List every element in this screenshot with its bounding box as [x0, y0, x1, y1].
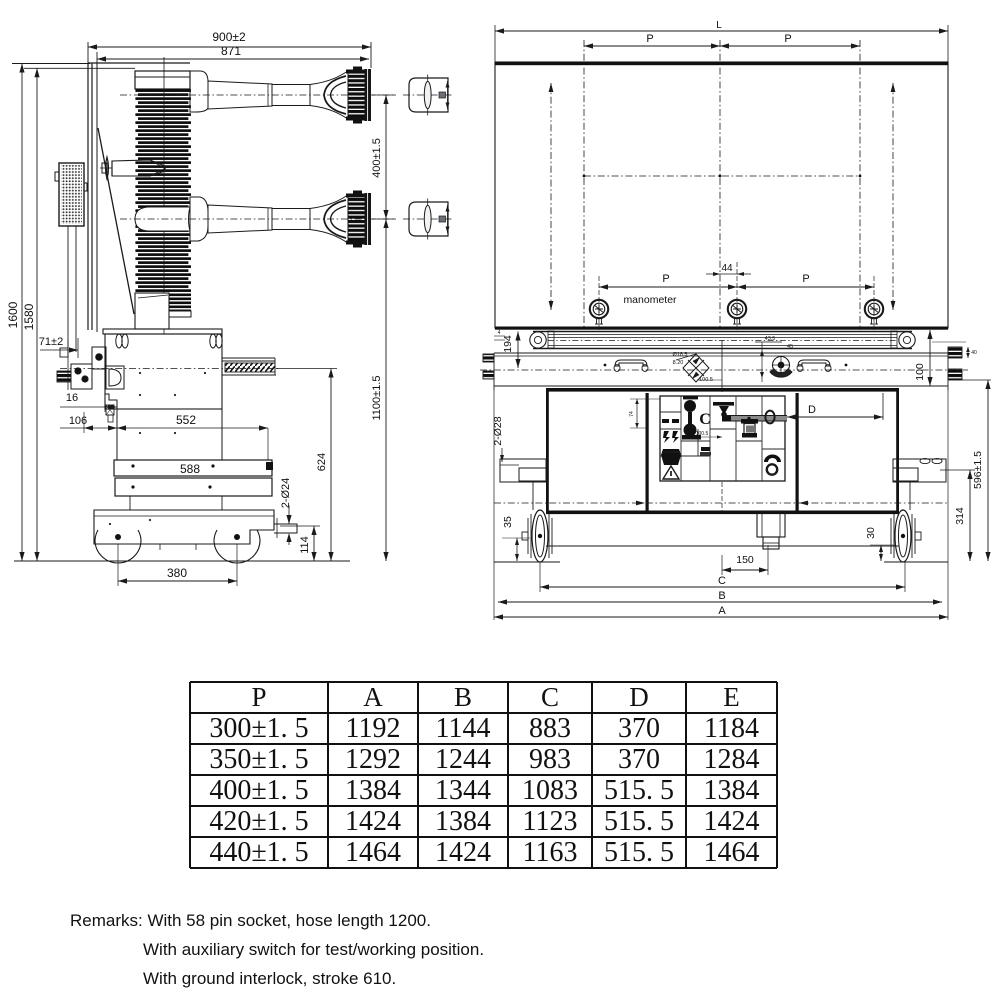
svg-text:370: 370	[618, 744, 660, 775]
svg-text:Remarks: With 58 pin socket, h: Remarks: With 58 pin socket, hose length…	[70, 911, 431, 930]
svg-text:Ø18.5: Ø18.5	[673, 352, 688, 358]
svg-text:C: C	[541, 682, 559, 712]
svg-text:4: 4	[498, 330, 501, 336]
svg-text:1144: 1144	[436, 713, 491, 744]
svg-text:8.20: 8.20	[673, 360, 684, 366]
svg-text:150: 150	[736, 554, 754, 566]
svg-text:515. 5: 515. 5	[604, 775, 674, 806]
svg-text:A: A	[718, 605, 726, 617]
svg-text:1244: 1244	[435, 744, 491, 775]
svg-text:1292: 1292	[345, 744, 401, 775]
svg-text:C: C	[699, 411, 711, 428]
svg-text:1424: 1424	[345, 806, 401, 837]
svg-text:552: 552	[176, 413, 196, 427]
svg-text:With auxiliary switch for test: With auxiliary switch for test/working p…	[143, 940, 484, 959]
svg-text:300±1. 5: 300±1. 5	[209, 713, 308, 744]
svg-text:1424: 1424	[435, 837, 491, 868]
svg-text:manometer: manometer	[623, 294, 677, 306]
svg-text:74: 74	[629, 411, 635, 417]
svg-text:1384: 1384	[435, 806, 491, 837]
svg-text:1464: 1464	[704, 837, 760, 868]
svg-text:515. 5: 515. 5	[604, 806, 674, 837]
svg-text:588: 588	[180, 462, 200, 476]
svg-text:100: 100	[914, 363, 926, 381]
svg-text:B: B	[718, 590, 725, 602]
svg-text:100.5: 100.5	[696, 431, 709, 437]
svg-text:440±1. 5: 440±1. 5	[209, 837, 308, 868]
svg-text:C: C	[718, 575, 726, 587]
svg-text:45: 45	[787, 344, 793, 350]
svg-text:D: D	[629, 682, 649, 712]
svg-text:1192: 1192	[346, 713, 401, 744]
svg-text:400±1.5: 400±1.5	[371, 138, 383, 178]
svg-text:900±2: 900±2	[212, 30, 246, 44]
svg-text:1600: 1600	[6, 301, 20, 328]
svg-text:515. 5: 515. 5	[604, 837, 674, 868]
svg-text:624: 624	[316, 453, 328, 471]
svg-text:1424: 1424	[704, 806, 760, 837]
svg-text:1384: 1384	[345, 775, 401, 806]
svg-text:1100±1.5: 1100±1.5	[371, 376, 383, 421]
svg-text:71±2: 71±2	[39, 336, 63, 348]
svg-text:With ground interlock, stroke: With ground interlock, stroke 610.	[143, 969, 396, 988]
svg-text:370: 370	[618, 713, 660, 744]
svg-text:1123: 1123	[523, 806, 578, 837]
svg-text:35: 35	[502, 516, 514, 528]
svg-text:194: 194	[502, 335, 514, 353]
svg-text:30: 30	[865, 527, 877, 539]
svg-text:1464: 1464	[345, 837, 401, 868]
svg-text:40: 40	[971, 350, 977, 356]
svg-text:420±1. 5: 420±1. 5	[209, 806, 308, 837]
svg-text:P: P	[251, 682, 266, 712]
svg-text:380: 380	[167, 566, 187, 580]
svg-text:106: 106	[69, 415, 87, 427]
svg-text:350±1. 5: 350±1. 5	[209, 744, 308, 775]
svg-text:P: P	[802, 273, 809, 285]
svg-text:1384: 1384	[704, 775, 760, 806]
svg-text:L: L	[716, 20, 722, 31]
svg-text:P: P	[646, 33, 653, 45]
svg-text:1344: 1344	[435, 775, 491, 806]
svg-text:E: E	[723, 682, 740, 712]
svg-text:1284: 1284	[704, 744, 760, 775]
svg-text:43.5: 43.5	[765, 336, 776, 342]
svg-text:44: 44	[721, 263, 733, 274]
svg-text:D: D	[808, 404, 816, 416]
svg-text:P: P	[662, 273, 669, 285]
svg-text:B: B	[454, 682, 472, 712]
svg-text:16: 16	[66, 392, 78, 404]
svg-text:983: 983	[529, 744, 571, 775]
svg-text:883: 883	[529, 713, 571, 744]
svg-text:A: A	[363, 682, 383, 712]
svg-text:1580: 1580	[22, 303, 36, 330]
svg-text:1184: 1184	[704, 713, 759, 744]
svg-text:400±1. 5: 400±1. 5	[209, 775, 308, 806]
svg-text:2-Ø28: 2-Ø28	[492, 416, 504, 445]
svg-text:1163: 1163	[523, 837, 578, 868]
svg-text:871: 871	[221, 44, 241, 58]
svg-text:P: P	[784, 33, 791, 45]
svg-text:1083: 1083	[522, 775, 578, 806]
svg-text:114: 114	[299, 536, 311, 554]
svg-text:2-Ø24: 2-Ø24	[280, 478, 292, 509]
svg-text:314: 314	[954, 507, 966, 525]
